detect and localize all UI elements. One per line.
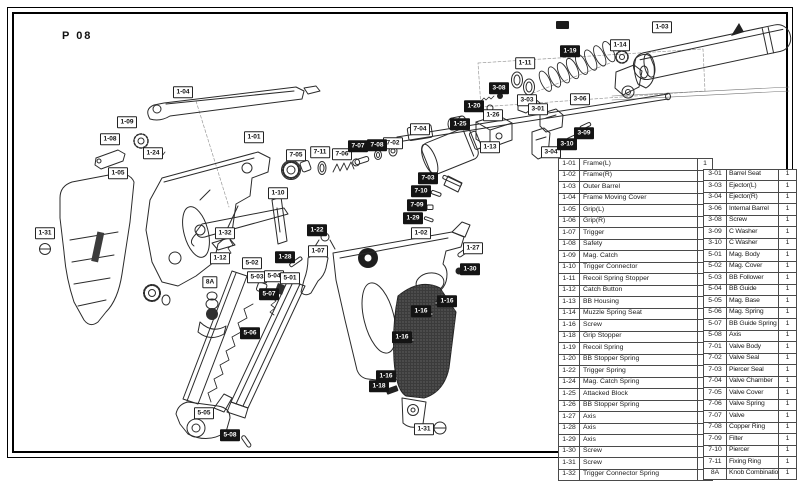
parts-row: 1-26BB Stopper Spring1 [559, 400, 713, 412]
parts-cell-name: Axis [580, 423, 698, 435]
parts-cell-no: 1-09 [559, 251, 580, 263]
parts-cell-name: Filter [727, 434, 779, 446]
parts-cell-qty: 1 [779, 434, 797, 446]
part-label-1-18: 1-18 [369, 380, 389, 392]
parts-cell-name: Attacked Block [580, 389, 698, 401]
parts-row: 1-04Frame Moving Cover1 [559, 193, 713, 205]
part-label-7-03: 7-03 [418, 172, 438, 184]
part-label-1-12: 1-12 [210, 252, 230, 264]
parts-row: 1-19Recoil Spring1 [559, 343, 713, 355]
parts-cell-name: Grip(L) [580, 205, 698, 217]
parts-cell-no: 7-03 [704, 365, 727, 377]
part-label-3-01: 3-01 [528, 103, 548, 115]
parts-cell-name: Recoil Spring Stopper [580, 274, 698, 286]
parts-cell-no: 3-09 [704, 227, 727, 239]
parts-row: 7-03Piercer Seal1 [704, 365, 797, 377]
parts-cell-no: 5-04 [704, 284, 727, 296]
part-label-1-02: 1-02 [411, 227, 431, 239]
parts-cell-qty: 1 [779, 319, 797, 331]
parts-cell-name: BB Follower [727, 273, 779, 285]
parts-table-right: 3-01Barrel Seat13-03Ejector(L)13-04Eject… [703, 169, 797, 481]
parts-cell-name: Mag. Spring [727, 307, 779, 319]
parts-cell-name: BB Housing [580, 297, 698, 309]
parts-cell-name: Trigger [580, 228, 698, 240]
part-label-1-11: 1-11 [515, 57, 535, 69]
parts-row: 1-20BB Stopper Spring1 [559, 354, 713, 366]
parts-cell-no: 1-19 [559, 343, 580, 355]
parts-cell-qty: 1 [779, 192, 797, 204]
parts-cell-no: 8A [704, 468, 727, 480]
part-label-1-10: 1-10 [268, 187, 288, 199]
parts-cell-no: 1-22 [559, 366, 580, 378]
parts-row: 3-10C Washer1 [704, 238, 797, 250]
part-label-1-14: 1-14 [610, 39, 630, 51]
parts-row: 3-08Screw1 [704, 215, 797, 227]
parts-cell-qty: 1 [779, 296, 797, 308]
parts-row: 1-32Trigger Connector Spring1 [559, 469, 713, 481]
parts-cell-no: 3-04 [704, 192, 727, 204]
parts-cell-name: Ejector(R) [727, 192, 779, 204]
part-label-1-03: 1-03 [652, 21, 672, 33]
parts-cell-name: Copper Ring [727, 422, 779, 434]
parts-row: 1-05Grip(L)1 [559, 205, 713, 217]
parts-row: 1-02Frame(R)1 [559, 170, 713, 182]
parts-row: 7-10Piercer1 [704, 445, 797, 457]
parts-cell-qty: 1 [779, 169, 797, 181]
part-label-1-16: 1-16 [437, 295, 457, 307]
part-label-1-22: 1-22 [307, 224, 327, 236]
part-label-7-04: 7-04 [410, 123, 430, 135]
parts-row: 3-06Internal Barrel1 [704, 204, 797, 216]
parts-row: 1-06Grip(R)1 [559, 216, 713, 228]
parts-cell-name: Piercer [727, 445, 779, 457]
parts-row: 1-03Outer Barrel1 [559, 182, 713, 194]
parts-cell-qty: 1 [779, 399, 797, 411]
parts-cell-qty: 1 [779, 330, 797, 342]
parts-row: 7-06Valve Spring1 [704, 399, 797, 411]
parts-cell-no: 1-24 [559, 377, 580, 389]
parts-cell-name: Grip Stopper [580, 331, 698, 343]
parts-cell-name: Valve Chamber [727, 376, 779, 388]
parts-cell-qty: 1 [779, 273, 797, 285]
parts-cell-no: 1-02 [559, 170, 580, 182]
part-label-5-06: 5-06 [240, 327, 260, 339]
part-label-3-10: 3-10 [557, 138, 577, 150]
parts-cell-name: Muzzle Spring Seat [580, 308, 698, 320]
parts-cell-no: 1-28 [559, 423, 580, 435]
part-label-1-07: 1-07 [308, 245, 328, 257]
parts-cell-name: Trigger Connector [580, 262, 698, 274]
parts-cell-name: C Washer [727, 238, 779, 250]
parts-row: 1-09Mag. Catch1 [559, 251, 713, 263]
parts-row: 5-06Mag. Spring1 [704, 307, 797, 319]
parts-cell-qty: 1 [779, 215, 797, 227]
part-label-1-27: 1-27 [463, 242, 483, 254]
parts-cell-no: 3-03 [704, 181, 727, 193]
parts-cell-no: 7-10 [704, 445, 727, 457]
part-label-1-08: 1-08 [100, 133, 120, 145]
parts-cell-no: 1-27 [559, 412, 580, 424]
parts-cell-name: Valve Spring [727, 399, 779, 411]
parts-cell-qty: 1 [779, 261, 797, 273]
parts-cell-name: Mag. Catch [580, 251, 698, 263]
part-label-1-19: 1-19 [560, 45, 580, 57]
part-label-1-01: 1-01 [244, 131, 264, 143]
part-label-1-31: 1-31 [35, 227, 55, 239]
parts-cell-no: 7-06 [704, 399, 727, 411]
parts-cell-name: BB Stopper Spring [580, 400, 698, 412]
parts-row: 5-08Axis1 [704, 330, 797, 342]
parts-cell-no: 5-03 [704, 273, 727, 285]
parts-cell-qty: 1 [779, 342, 797, 354]
parts-cell-name: Fixing Ring [727, 457, 779, 469]
parts-row: 1-11Recoil Spring Stopper1 [559, 274, 713, 286]
parts-row: 5-04BB Guide1 [704, 284, 797, 296]
parts-cell-no: 5-05 [704, 296, 727, 308]
parts-cell-qty: 1 [779, 365, 797, 377]
parts-row: 3-09C Washer1 [704, 227, 797, 239]
parts-row: 8AKnob Combination1 [704, 468, 797, 480]
parts-table-left: 1-01Frame(L)11-02Frame(R)11-03Outer Barr… [558, 158, 713, 481]
part-label-5-07: 5-07 [259, 288, 279, 300]
parts-row: 1-08Safety1 [559, 239, 713, 251]
parts-row: 7-02Valve Seal1 [704, 353, 797, 365]
parts-cell-no: 5-08 [704, 330, 727, 342]
part-label-1-26: 1-26 [483, 109, 503, 121]
parts-row: 1-14Muzzle Spring Seat1 [559, 308, 713, 320]
parts-cell-no: 1-08 [559, 239, 580, 251]
parts-cell-name: Knob Combination [727, 468, 779, 480]
parts-cell-no: 1-06 [559, 216, 580, 228]
parts-cell-no: 5-02 [704, 261, 727, 273]
parts-row: 1-07Trigger1 [559, 228, 713, 240]
part-label-3-06: 3-06 [570, 93, 590, 105]
parts-cell-name: Barrel Seat [727, 169, 779, 181]
parts-row: 5-03BB Follower1 [704, 273, 797, 285]
parts-cell-no: 1-30 [559, 446, 580, 458]
parts-cell-no: 1-01 [559, 159, 580, 171]
parts-row: 5-07BB Guide Spring1 [704, 319, 797, 331]
parts-cell-qty: 1 [779, 468, 797, 480]
part-label-7-08: 7-08 [367, 139, 387, 151]
parts-cell-name: Valve Body [727, 342, 779, 354]
parts-cell-no: 7-09 [704, 434, 727, 446]
part-label-1-04: 1-04 [173, 86, 193, 98]
parts-cell-name: Outer Barrel [580, 182, 698, 194]
parts-cell-no: 7-01 [704, 342, 727, 354]
part-label-1-16: 1-16 [392, 331, 412, 343]
part-label-1-28: 1-28 [275, 251, 295, 263]
parts-cell-name: Internal Barrel [727, 204, 779, 216]
part-label-7-11: 7-11 [310, 146, 330, 158]
parts-row: 7-07Valve1 [704, 411, 797, 423]
parts-row: 1-31Screw2 [559, 458, 713, 470]
parts-row: 5-01Mag. Body1 [704, 250, 797, 262]
part-label-1-16: 1-16 [411, 305, 431, 317]
part-label-7-09: 7-09 [407, 199, 427, 211]
parts-cell-name: Grip(R) [580, 216, 698, 228]
parts-cell-name: BB Stopper Spring [580, 354, 698, 366]
parts-row: 3-03Ejector(L)1 [704, 181, 797, 193]
parts-row: 1-29Axis1 [559, 435, 713, 447]
parts-row: 1-22Trigger Spring1 [559, 366, 713, 378]
parts-row: 7-04Valve Chamber1 [704, 376, 797, 388]
parts-cell-name: Screw [580, 446, 698, 458]
parts-cell-qty: 1 [779, 250, 797, 262]
parts-cell-qty: 1 [779, 422, 797, 434]
part-label-1-31: 1-31 [414, 423, 434, 435]
parts-row: 7-08Copper Ring1 [704, 422, 797, 434]
parts-cell-name: Safety [580, 239, 698, 251]
parts-cell-no: 1-25 [559, 389, 580, 401]
part-label-1-05: 1-05 [108, 167, 128, 179]
parts-cell-name: Trigger Connector Spring [580, 469, 698, 481]
part-label-1-09: 1-09 [117, 116, 137, 128]
parts-row: 1-18Grip Stopper1 [559, 331, 713, 343]
parts-cell-name: Mag. Base [727, 296, 779, 308]
parts-row: 7-01Valve Body1 [704, 342, 797, 354]
parts-cell-no: 3-06 [704, 204, 727, 216]
parts-cell-no: 7-08 [704, 422, 727, 434]
part-label-7-05: 7-05 [286, 149, 306, 161]
parts-cell-no: 7-07 [704, 411, 727, 423]
parts-cell-name: Screw [580, 320, 698, 332]
parts-cell-no: 1-29 [559, 435, 580, 447]
parts-cell-qty: 1 [779, 411, 797, 423]
part-label-7-10: 7-10 [411, 185, 431, 197]
parts-cell-name: BB Guide [727, 284, 779, 296]
parts-cell-no: 1-03 [559, 182, 580, 194]
parts-cell-name: Frame(L) [580, 159, 698, 171]
parts-cell-no: 1-26 [559, 400, 580, 412]
parts-cell-name: Valve Seal [727, 353, 779, 365]
parts-row: 5-05Mag. Base1 [704, 296, 797, 308]
parts-cell-no: 5-01 [704, 250, 727, 262]
part-label-5-02: 5-02 [242, 257, 262, 269]
parts-row: 1-27Axis1 [559, 412, 713, 424]
parts-row: 1-30Screw1 [559, 446, 713, 458]
parts-cell-qty: 1 [779, 388, 797, 400]
parts-cell-name: Valve Cover [727, 388, 779, 400]
parts-cell-no: 1-32 [559, 469, 580, 481]
parts-cell-no: 1-14 [559, 308, 580, 320]
parts-row: 1-25Attacked Block1 [559, 389, 713, 401]
parts-row: 7-05Valve Cover1 [704, 388, 797, 400]
parts-cell-name: Catch Button [580, 285, 698, 297]
parts-cell-name: Frame(R) [580, 170, 698, 182]
parts-cell-no: 3-08 [704, 215, 727, 227]
parts-cell-no: 1-11 [559, 274, 580, 286]
parts-cell-name: Mag. Body [727, 250, 779, 262]
parts-row: 1-24Mag. Catch Spring1 [559, 377, 713, 389]
part-label-3-08: 3-08 [489, 82, 509, 94]
parts-cell-no: 1-20 [559, 354, 580, 366]
parts-cell-name: Frame Moving Cover [580, 193, 698, 205]
parts-cell-name: BB Guide Spring [727, 319, 779, 331]
parts-cell-name: Screw [580, 458, 698, 470]
parts-cell-no: 7-04 [704, 376, 727, 388]
parts-cell-no: 1-10 [559, 262, 580, 274]
part-label-1-20: 1-20 [464, 100, 484, 112]
part-label-5-05: 5-05 [194, 407, 214, 419]
parts-cell-qty: 1 [779, 238, 797, 250]
part-label-3-09: 3-09 [574, 127, 594, 139]
part-label-5-08: 5-08 [220, 429, 240, 441]
parts-row: 1-01Frame(L)1 [559, 159, 713, 171]
parts-cell-name: Axis [580, 435, 698, 447]
parts-cell-no: 7-11 [704, 457, 727, 469]
parts-cell-no: 1-04 [559, 193, 580, 205]
parts-cell-no: 1-13 [559, 297, 580, 309]
parts-cell-no: 5-07 [704, 319, 727, 331]
parts-row: 1-28Axis1 [559, 423, 713, 435]
parts-cell-no: 1-16 [559, 320, 580, 332]
part-label-1-30: 1-30 [460, 263, 480, 275]
parts-cell-no: 7-05 [704, 388, 727, 400]
parts-cell-no: 1-12 [559, 285, 580, 297]
parts-row: 7-11Fixing Ring1 [704, 457, 797, 469]
part-label-1-25: 1-25 [450, 118, 470, 130]
parts-cell-no: 5-06 [704, 307, 727, 319]
parts-cell-name: Valve [727, 411, 779, 423]
parts-cell-name: Piercer Seal [727, 365, 779, 377]
part-label-1-13: 1-13 [480, 141, 500, 153]
parts-cell-name: Trigger Spring [580, 366, 698, 378]
parts-row: 1-12Catch Button1 [559, 285, 713, 297]
parts-row: 1-16Screw5 [559, 320, 713, 332]
parts-cell-name: Axis [580, 412, 698, 424]
parts-cell-name: Mag. Cover [727, 261, 779, 273]
parts-row: 3-04Ejector(R)1 [704, 192, 797, 204]
parts-cell-no: 3-10 [704, 238, 727, 250]
parts-cell-qty: 1 [779, 376, 797, 388]
part-label-1-32: 1-32 [215, 227, 235, 239]
parts-cell-qty: 1 [779, 284, 797, 296]
parts-cell-name: Axis [727, 330, 779, 342]
part-label-7-07: 7-07 [348, 140, 368, 152]
parts-row: 3-01Barrel Seat1 [704, 169, 797, 181]
parts-cell-qty: 1 [779, 445, 797, 457]
parts-cell-no: 7-02 [704, 353, 727, 365]
parts-cell-name: Recoil Spring [580, 343, 698, 355]
parts-cell-no: 1-31 [559, 458, 580, 470]
part-label-5-01: 5-01 [280, 272, 300, 284]
part-label-1-29: 1-29 [403, 212, 423, 224]
parts-cell-no: 1-07 [559, 228, 580, 240]
parts-row: 5-02Mag. Cover1 [704, 261, 797, 273]
parts-cell-qty: 1 [779, 307, 797, 319]
parts-cell-qty: 1 [779, 227, 797, 239]
parts-cell-no: 1-18 [559, 331, 580, 343]
parts-cell-qty: 1 [779, 204, 797, 216]
parts-cell-no: 1-05 [559, 205, 580, 217]
parts-cell-name: Mag. Catch Spring [580, 377, 698, 389]
parts-cell-name: C Washer [727, 227, 779, 239]
parts-cell-qty: 1 [779, 181, 797, 193]
part-label-8A: 8A [202, 276, 217, 288]
part-label-1-24: 1-24 [143, 147, 163, 159]
parts-cell-qty: 1 [779, 457, 797, 469]
parts-row: 1-13BB Housing1 [559, 297, 713, 309]
parts-row: 7-09Filter1 [704, 434, 797, 446]
parts-row: 1-10Trigger Connector1 [559, 262, 713, 274]
parts-cell-name: Ejector(L) [727, 181, 779, 193]
parts-cell-name: Screw [727, 215, 779, 227]
parts-cell-no: 3-01 [704, 169, 727, 181]
parts-cell-qty: 1 [779, 353, 797, 365]
